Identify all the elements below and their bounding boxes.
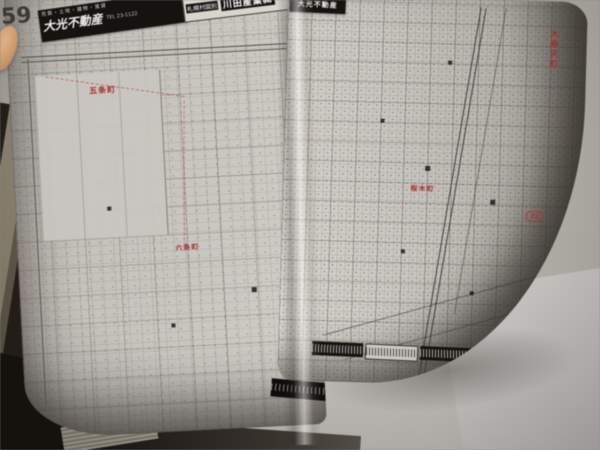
building-block [425, 166, 430, 171]
district-label: 六条町 [175, 242, 199, 253]
district-label-vertical: 大麻沢町 [548, 29, 560, 69]
ad-phone: TEL 23-1122 [106, 10, 138, 20]
district-label: 桜木町 [410, 184, 434, 195]
building-block [380, 119, 384, 123]
building-block [448, 60, 452, 64]
building-block [470, 291, 474, 295]
building-block [107, 207, 111, 211]
building-block [401, 249, 405, 253]
building-block [252, 287, 257, 292]
photo-open-map-book: 売買・土地・建物・賃貸 大光不動産 TEL 23-1122 札幌村図別 川田産業… [0, 0, 600, 450]
route-number-marker: 12 [526, 211, 543, 222]
book-gutter [276, 0, 322, 445]
right-page: 大光不動産 桜木町 大麻沢町 12 [277, 0, 588, 388]
building-block [171, 323, 175, 327]
ad-company-name: 川田産業㈱ [220, 0, 275, 11]
ad-box [365, 343, 419, 361]
ad-box [473, 348, 527, 366]
ad-box [420, 346, 472, 362]
district-label: 五条町 [89, 84, 117, 96]
ad-tag: 札幌村図別 [186, 0, 219, 13]
building-block [490, 200, 495, 205]
boundary-dashed-line [184, 101, 185, 251]
